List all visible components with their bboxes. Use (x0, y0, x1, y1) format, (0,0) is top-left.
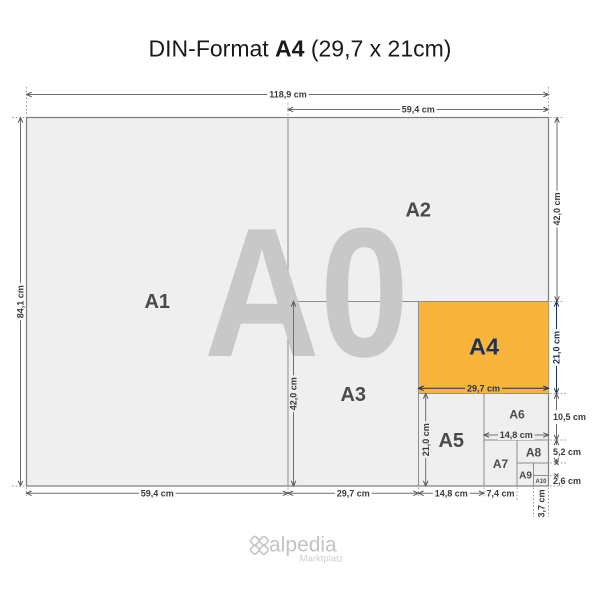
svg-text:21,0 cm: 21,0 cm (552, 331, 562, 364)
svg-text:5,2 cm: 5,2 cm (553, 447, 581, 457)
svg-text:Marktplatz: Marktplatz (300, 554, 344, 565)
svg-text:A5: A5 (438, 430, 464, 452)
svg-text:A10: A10 (535, 479, 547, 485)
svg-text:14,8 cm: 14,8 cm (435, 489, 468, 499)
svg-text:59,4 cm: 59,4 cm (402, 105, 435, 115)
svg-text:42,0 cm: 42,0 cm (552, 192, 562, 225)
svg-text:3,7 cm: 3,7 cm (537, 489, 547, 517)
svg-text:29,7 cm: 29,7 cm (337, 489, 370, 499)
svg-text:A3: A3 (340, 384, 366, 406)
svg-text:A4: A4 (469, 333, 499, 359)
svg-text:21,0 cm: 21,0 cm (421, 423, 431, 456)
svg-text:A8: A8 (526, 445, 542, 459)
svg-text:10,5 cm: 10,5 cm (553, 412, 586, 422)
svg-text:A6: A6 (509, 407, 525, 421)
svg-text:A0: A0 (204, 189, 409, 395)
svg-text:2,6 cm: 2,6 cm (553, 476, 581, 486)
svg-text:29,7 cm: 29,7 cm (467, 384, 500, 394)
svg-text:A2: A2 (405, 200, 431, 222)
svg-text:59,4 cm: 59,4 cm (141, 489, 174, 499)
svg-text:7,4 cm: 7,4 cm (486, 489, 514, 499)
svg-text:A9: A9 (519, 470, 532, 481)
svg-text:DIN-Format A4 (29,7 x 21cm): DIN-Format A4 (29,7 x 21cm) (149, 36, 452, 62)
svg-text:84,1 cm: 84,1 cm (16, 285, 26, 318)
svg-text:14,8 cm: 14,8 cm (500, 430, 533, 440)
svg-text:118,9 cm: 118,9 cm (269, 90, 307, 100)
svg-text:42,0 cm: 42,0 cm (289, 377, 299, 410)
svg-text:A7: A7 (493, 457, 509, 471)
svg-text:A1: A1 (144, 291, 170, 313)
